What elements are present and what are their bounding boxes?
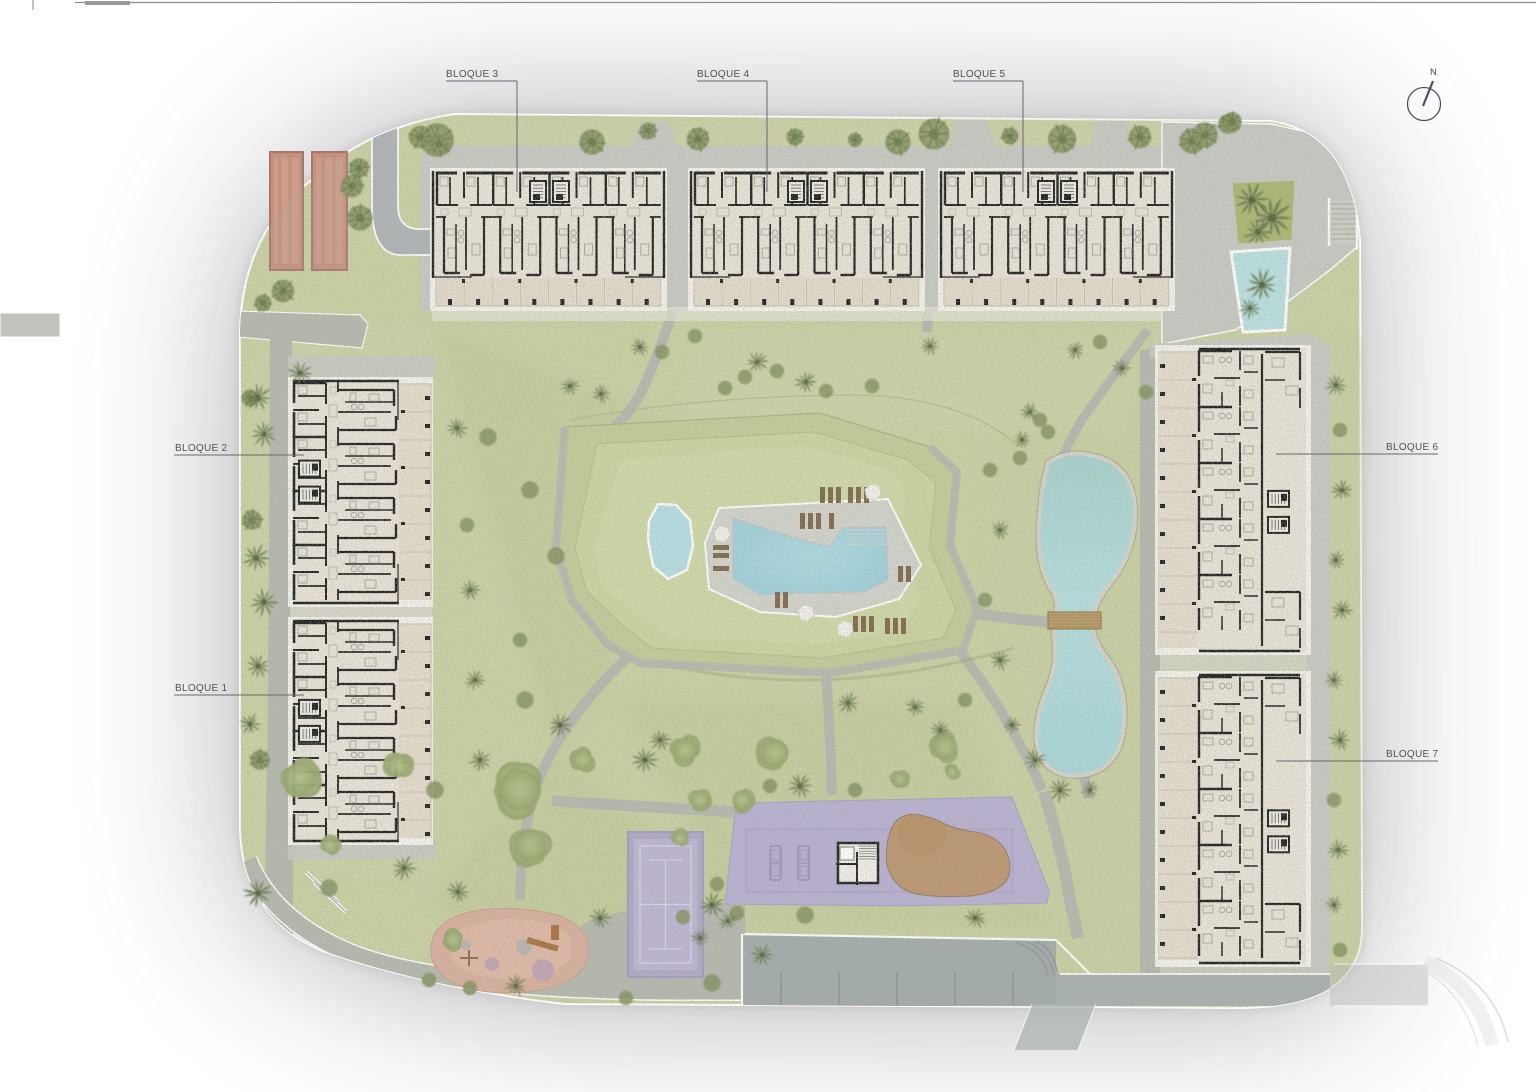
- svg-text:BLOQUE 1: BLOQUE 1: [175, 683, 228, 694]
- svg-text:BLOQUE 5: BLOQUE 5: [953, 69, 1006, 80]
- svg-text:BLOQUE 4: BLOQUE 4: [697, 69, 750, 80]
- svg-text:BLOQUE 3: BLOQUE 3: [446, 69, 499, 80]
- svg-text:N: N: [1430, 67, 1437, 78]
- svg-text:BLOQUE 6: BLOQUE 6: [1386, 442, 1439, 453]
- svg-text:BLOQUE 7: BLOQUE 7: [1386, 749, 1439, 760]
- svg-text:BLOQUE 2: BLOQUE 2: [175, 443, 228, 454]
